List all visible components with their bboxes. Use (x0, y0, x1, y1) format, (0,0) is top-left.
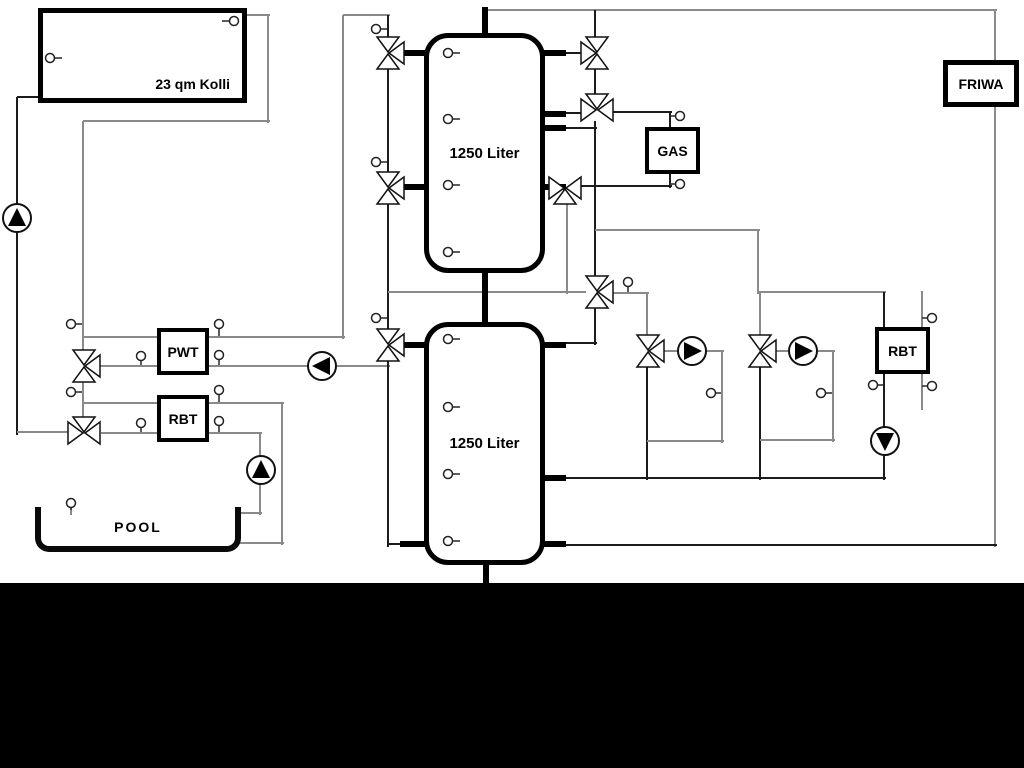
pipe-segment (388, 543, 404, 545)
rbt-left-unit: RBT (157, 395, 209, 442)
pipe-segment (564, 342, 597, 344)
three-way-valve-icon (547, 170, 583, 211)
rbt-right-unit: RBT (875, 327, 930, 374)
temperature-sensor-icon (205, 341, 233, 374)
pipe-segment (281, 403, 283, 545)
pwt-heat-exchanger: PWT (157, 328, 209, 375)
pipe-segment (101, 432, 159, 434)
tank-connection-stub (544, 125, 566, 131)
pool-label: POOL (114, 519, 162, 535)
pipe-segment (883, 455, 885, 480)
three-way-valve-icon (370, 327, 406, 368)
pipe-segment (387, 202, 389, 333)
three-way-valve-icon (630, 333, 666, 374)
tank-connection-stub (544, 541, 566, 547)
pipe-segment (594, 67, 596, 98)
temperature-sensor-icon (127, 342, 155, 375)
rbt-right-unit-label: RBT (888, 343, 917, 359)
buffer-tank-bottom-label: 1250 Liter (449, 435, 519, 452)
solar-collector: 23 qm Kolli (38, 8, 247, 103)
tank-connection-stub (544, 475, 566, 481)
tank-connection-stub (400, 50, 426, 56)
pipe-segment (83, 402, 159, 404)
tank-connection-stub (482, 270, 488, 324)
pipe-segment (83, 336, 159, 338)
pipe-segment (721, 351, 723, 443)
pipe-segment (883, 373, 885, 429)
pipe-segment (758, 291, 886, 293)
pipe-segment (238, 512, 262, 514)
tank-connection-stub (544, 184, 566, 190)
pipe-segment (209, 432, 262, 434)
pipe-segment (82, 380, 84, 421)
temperature-sensor-icon (807, 379, 835, 412)
pump-left-icon (305, 349, 339, 388)
pump-right-icon (786, 334, 820, 373)
pump-up-icon (244, 453, 278, 492)
pipe-segment (994, 107, 996, 547)
tank-connection-stub (544, 50, 566, 56)
tank-connection-stub (400, 541, 426, 547)
pipe-segment (566, 127, 597, 129)
pipe-segment (706, 350, 724, 352)
temperature-sensor-icon (918, 372, 946, 405)
friwa-station: FRIWA (943, 60, 1019, 107)
friwa-station-label: FRIWA (958, 76, 1003, 92)
pipe-segment (581, 185, 672, 187)
pipe-segment (647, 440, 724, 442)
pipe-segment (664, 350, 680, 352)
pipe-segment (613, 111, 672, 113)
solar-collector-label: 23 qm Kolli (155, 76, 230, 92)
three-way-valve-icon (579, 274, 615, 315)
pipe-segment (669, 172, 671, 188)
buffer-tank-top-label: 1250 Liter (449, 145, 519, 162)
pool: POOL (35, 507, 241, 552)
pipe-segment (209, 402, 284, 404)
pipe-segment (209, 365, 310, 367)
gas-boiler: GAS (645, 127, 700, 174)
buffer-tank-bottom: 1250 Liter (424, 322, 545, 565)
pipe-segment (594, 306, 596, 345)
pipe-segment (238, 542, 284, 544)
temperature-sensor-icon (57, 378, 85, 411)
pipe-segment (83, 120, 270, 122)
pipe-segment (594, 121, 596, 279)
pipe-segment (757, 230, 759, 294)
pipe-segment (883, 292, 885, 330)
pipe-segment (832, 351, 834, 442)
pipe-segment (769, 350, 791, 352)
temperature-sensor-icon (859, 371, 887, 404)
pipe-segment (817, 350, 835, 352)
temperature-sensor-icon (362, 15, 390, 48)
buffer-tank-top: 1250 Liter (424, 33, 545, 273)
rbt-left-unit-label: RBT (169, 411, 198, 427)
tank-connection-stub (400, 342, 426, 348)
tank-connection-stub (544, 342, 566, 348)
temperature-sensor-icon (666, 170, 694, 203)
pump-right-icon (675, 334, 709, 373)
pipe-segment (387, 15, 389, 41)
pipe-segment (343, 14, 390, 16)
pipe-segment (595, 229, 760, 231)
pump-up-icon (0, 201, 34, 240)
temperature-sensor-icon (205, 310, 233, 343)
pwt-heat-exchanger-label: PWT (167, 344, 198, 360)
black-footer-area (0, 583, 1024, 768)
three-way-valve-icon (742, 333, 778, 374)
pipe-segment (566, 112, 584, 114)
three-way-valve-icon (370, 35, 406, 76)
pipe-segment (759, 366, 761, 480)
temperature-sensor-icon (362, 304, 390, 337)
pipe-segment (760, 439, 835, 441)
pipe-segment (387, 359, 389, 547)
pipe-segment (564, 544, 997, 546)
pipe-segment (613, 292, 649, 294)
temperature-sensor-icon (362, 148, 390, 181)
pipe-segment (247, 14, 270, 16)
pipe-segment (387, 67, 389, 176)
pipe-segment (17, 96, 40, 98)
tank-connection-stub (483, 563, 489, 584)
pipe-segment (759, 292, 761, 338)
temperature-sensor-icon (697, 379, 725, 412)
gas-boiler-label: GAS (657, 143, 687, 159)
three-way-valve-icon (66, 348, 102, 389)
three-way-valve-icon (579, 92, 615, 133)
three-way-valve-icon (66, 415, 102, 456)
three-way-valve-icon (579, 35, 615, 76)
pipe-segment (209, 336, 345, 338)
tank-connection-stub (400, 184, 426, 190)
pipe-segment (100, 365, 159, 367)
pipe-segment (646, 293, 648, 338)
pipe-segment (388, 291, 586, 293)
temperature-sensor-icon (127, 409, 155, 442)
pipe-segment (564, 477, 886, 479)
temperature-sensor-icon (57, 310, 85, 343)
pump-down-icon (868, 424, 902, 463)
temperature-sensor-icon (205, 376, 233, 409)
tank-connection-stub (544, 111, 566, 117)
pipe-segment (485, 9, 997, 11)
pipe-segment (267, 15, 269, 123)
temperature-sensor-icon (205, 407, 233, 440)
pipe-segment (259, 433, 261, 459)
pipe-segment (336, 365, 390, 367)
tank-connection-stub (482, 7, 488, 35)
pipe-segment (82, 121, 84, 354)
pipe-segment (566, 204, 568, 294)
pipe-segment (16, 97, 18, 435)
pipe-segment (342, 15, 344, 339)
pipe-segment (566, 52, 584, 54)
pipe-segment (17, 431, 70, 433)
temperature-sensor-icon (614, 268, 642, 301)
pipe-segment (994, 10, 996, 62)
pipe-segment (259, 484, 261, 515)
hydraulic-schematic: 23 qm Kolli 1250 Liter 1250 Liter GAS FR… (0, 0, 1024, 768)
pipe-segment (646, 366, 648, 480)
three-way-valve-icon (370, 170, 406, 211)
pipe-segment (594, 10, 596, 41)
